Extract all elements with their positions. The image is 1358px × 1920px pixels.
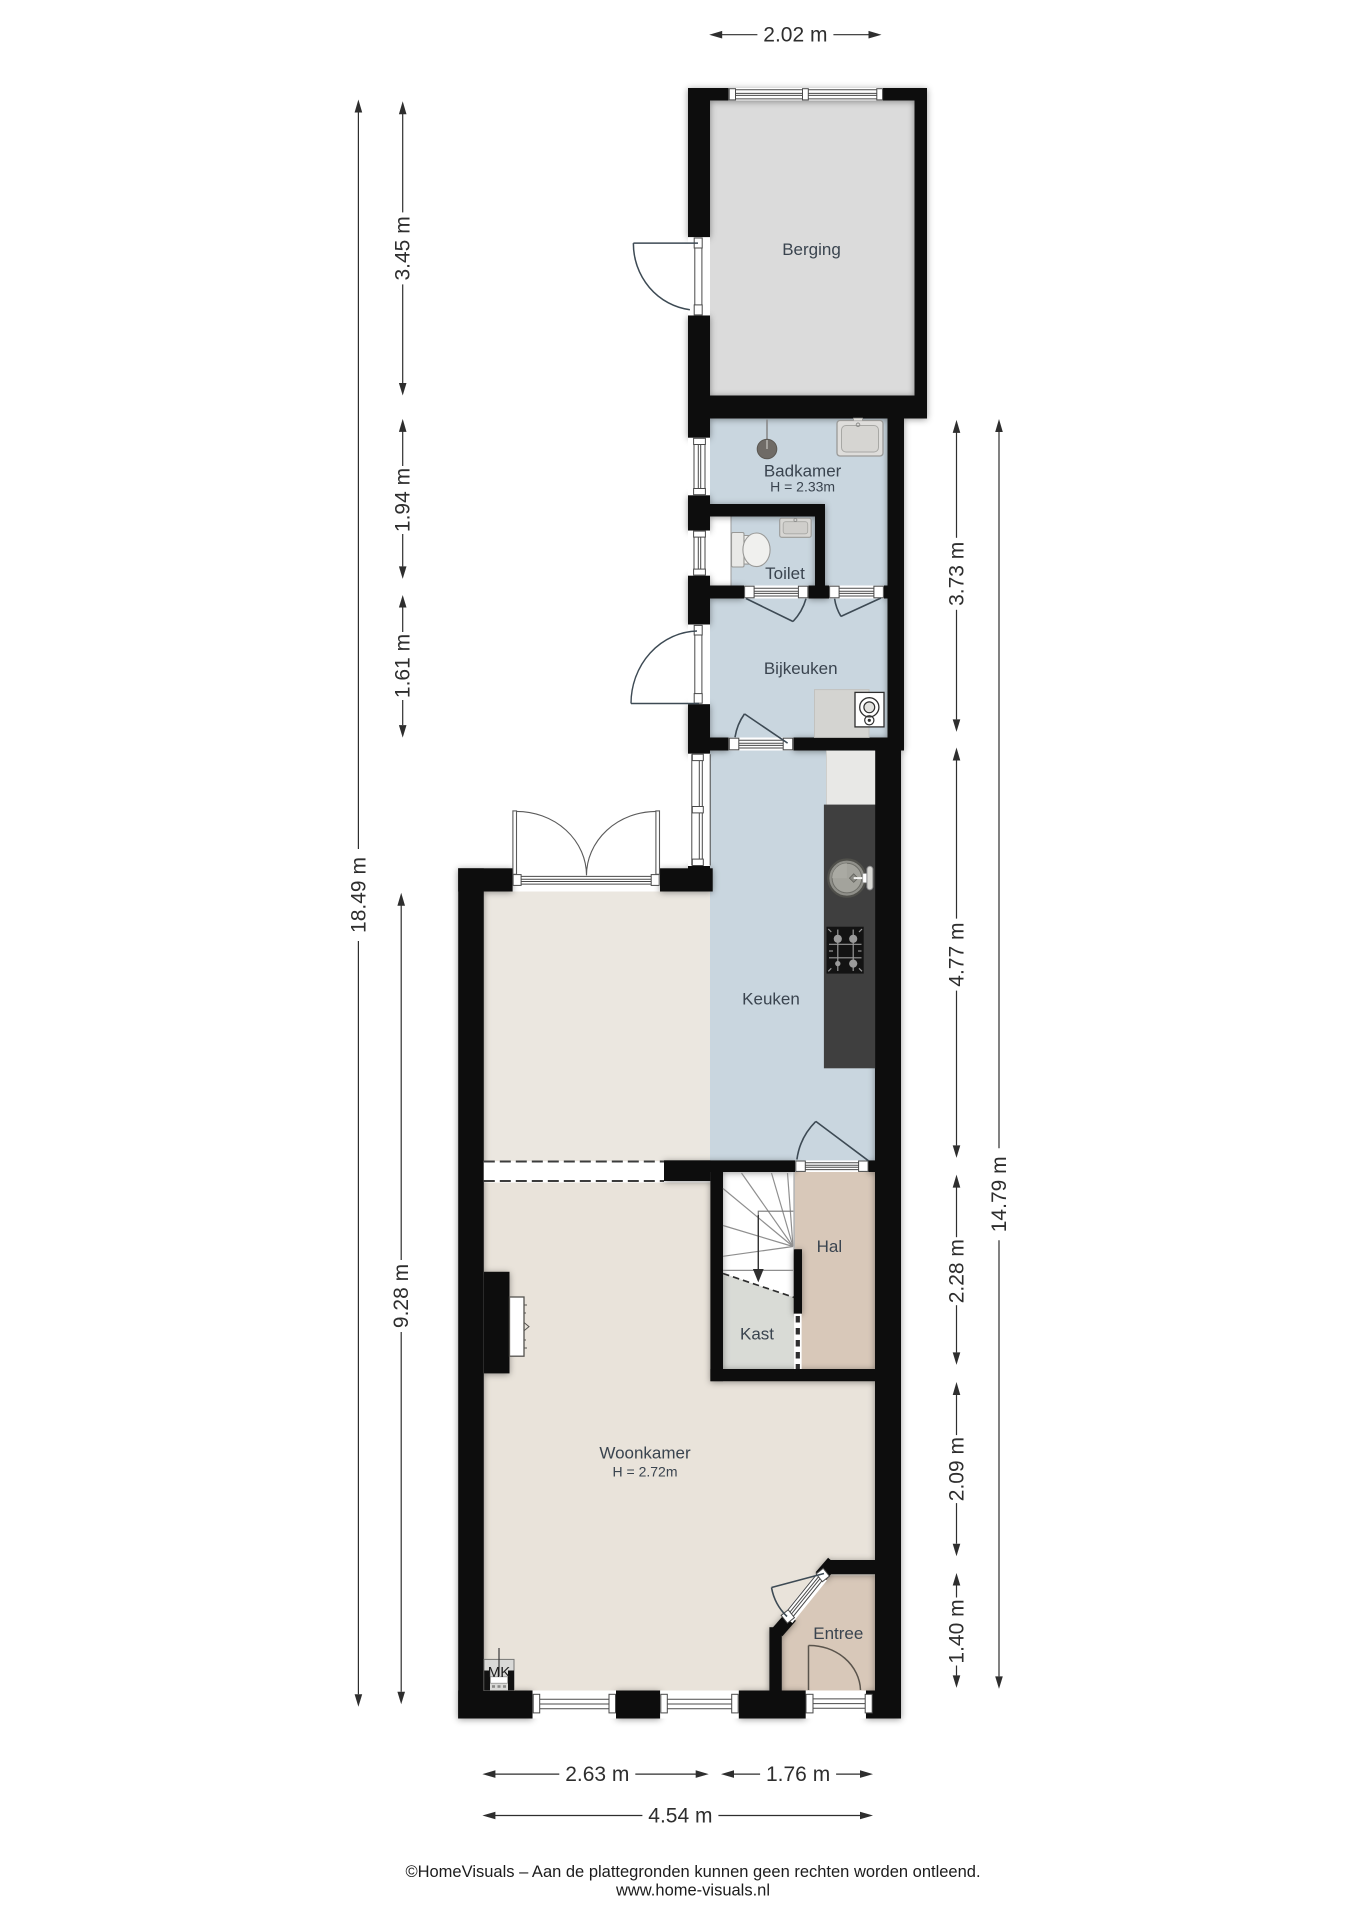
svg-text:Woonkamer: Woonkamer (599, 1444, 691, 1463)
svg-text:4.77 m: 4.77 m (946, 922, 969, 986)
svg-text:3.73 m: 3.73 m (946, 542, 969, 606)
svg-text:Toilet: Toilet (765, 564, 805, 583)
svg-text:9.28 m: 9.28 m (390, 1264, 413, 1328)
svg-text:1.94 m: 1.94 m (392, 468, 415, 532)
svg-text:2.09 m: 2.09 m (946, 1437, 969, 1501)
svg-text:©HomeVisuals – Aan de plattegr: ©HomeVisuals – Aan de plattegronden kunn… (405, 1863, 980, 1881)
svg-text:3.45 m: 3.45 m (392, 216, 415, 280)
svg-text:4.54 m: 4.54 m (648, 1805, 712, 1828)
svg-text:1.40 m: 1.40 m (946, 1599, 969, 1663)
svg-text:2.02 m: 2.02 m (763, 24, 827, 47)
svg-text:MK: MK (488, 1664, 511, 1681)
svg-text:Hal: Hal (817, 1237, 843, 1256)
svg-text:H = 2.72m: H = 2.72m (613, 1463, 678, 1479)
svg-text:www.home-visuals.nl: www.home-visuals.nl (615, 1882, 770, 1900)
svg-text:Entree: Entree (813, 1624, 863, 1643)
svg-text:Bijkeuken: Bijkeuken (764, 659, 838, 678)
svg-text:2.28 m: 2.28 m (946, 1239, 969, 1303)
svg-text:2.63 m: 2.63 m (565, 1763, 629, 1786)
svg-text:Keuken: Keuken (742, 990, 800, 1009)
svg-text:H = 2.33m: H = 2.33m (770, 479, 835, 495)
svg-text:18.49 m: 18.49 m (347, 857, 370, 933)
svg-text:14.79 m: 14.79 m (988, 1156, 1011, 1232)
svg-text:Kast: Kast (740, 1325, 774, 1344)
svg-text:1.76 m: 1.76 m (766, 1763, 830, 1786)
svg-text:1.61 m: 1.61 m (392, 634, 415, 698)
svg-text:Berging: Berging (782, 240, 841, 259)
